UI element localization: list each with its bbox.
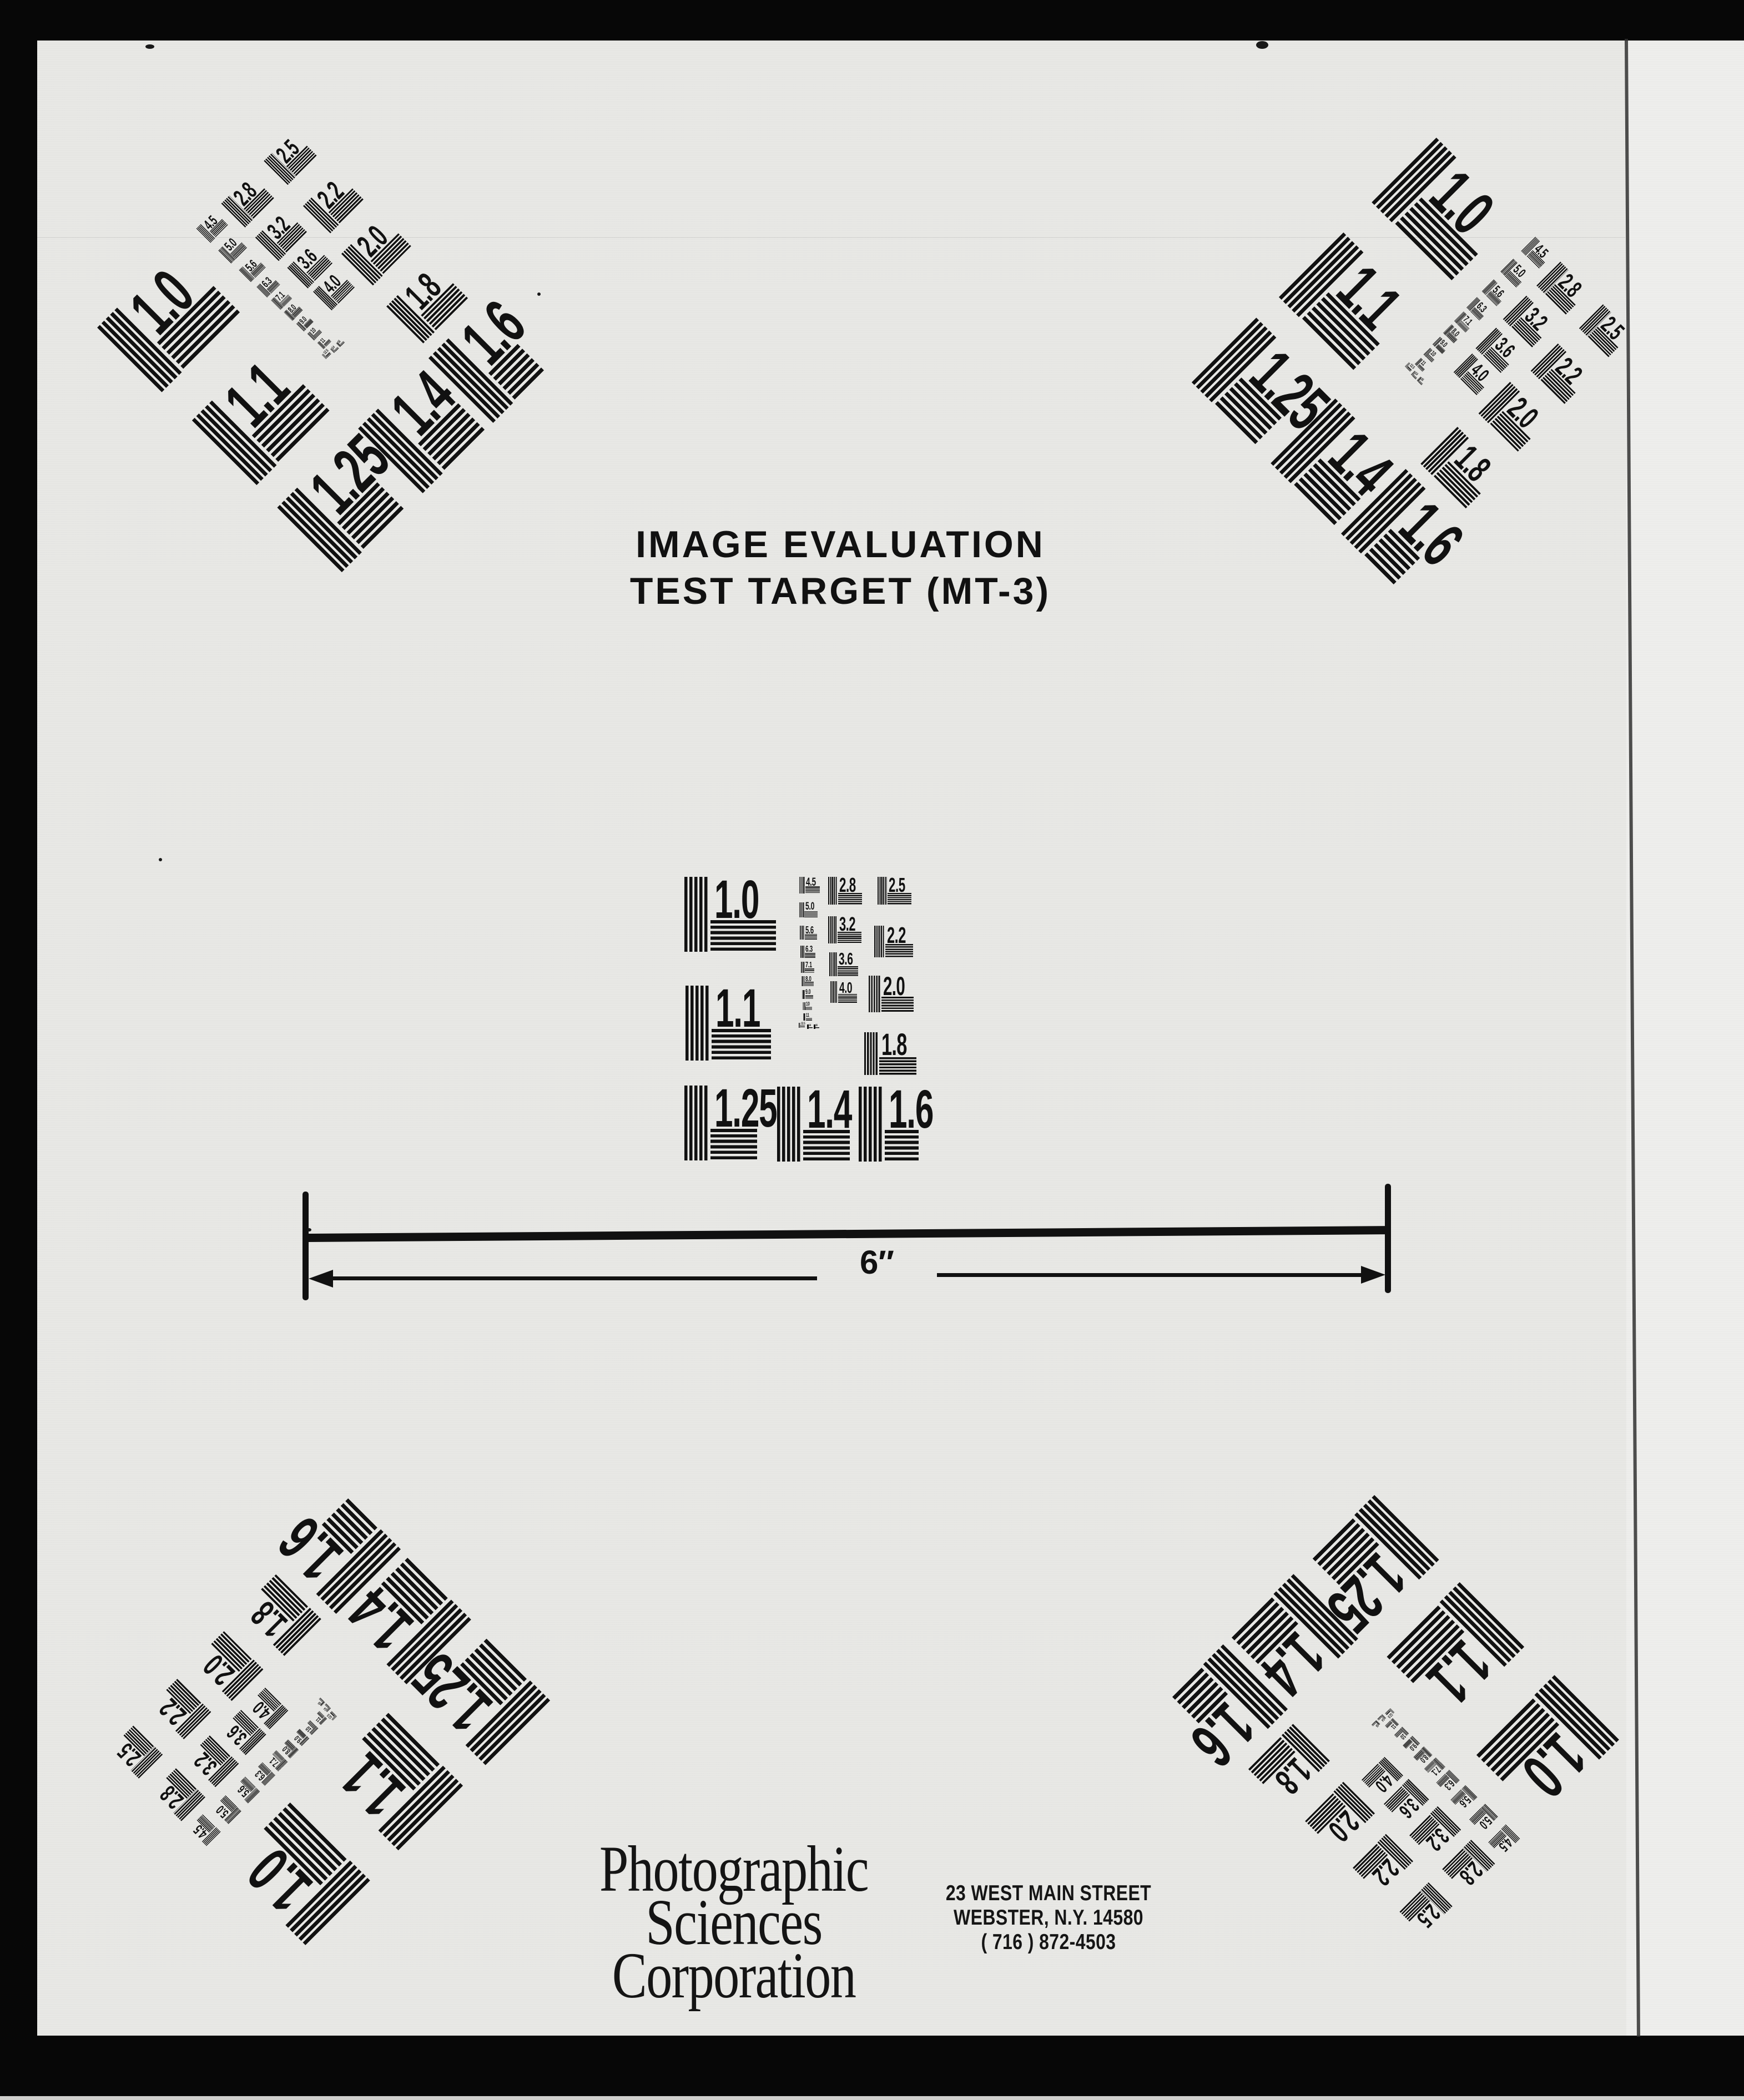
- resolution-bars-horizontal: [710, 1129, 757, 1160]
- resolution-bars-vertical: [800, 946, 804, 958]
- resolution-bars-horizontal: [805, 982, 814, 986]
- scale-bar-arrow-line-left: [320, 1276, 817, 1280]
- resolution-value-label: 2.0: [883, 973, 905, 1000]
- resolution-value-label: 1.25: [714, 1081, 777, 1135]
- resolution-bars-horizontal: [710, 920, 775, 952]
- resolution-bars-vertical: [684, 1086, 709, 1160]
- resolution-bars-horizontal: [838, 932, 861, 943]
- resolution-bars-vertical: [777, 1087, 802, 1162]
- title-line-1: IMAGE EVALUATION: [591, 521, 1090, 568]
- resolution-bars-horizontal: [838, 994, 857, 1003]
- resolution-bars-vertical: [828, 877, 838, 905]
- resolution-bars-horizontal: [804, 911, 817, 917]
- address-line-3: ( 716 ) 872-4503: [912, 1930, 1185, 1955]
- scale-bar-left-tick: [303, 1192, 309, 1300]
- company-line-3: Corporation: [556, 1949, 911, 2002]
- company-name-block: Photographic Sciences Corporation: [556, 1842, 911, 2002]
- resolution-bars-horizontal: [805, 1007, 812, 1010]
- scale-bar-arrow-line-right: [937, 1273, 1369, 1277]
- dust-speck: [537, 292, 541, 296]
- resolution-bars-horizontal: [838, 893, 863, 905]
- resolution-bars-vertical: [799, 877, 805, 893]
- title-block: IMAGE EVALUATION TEST TARGET (MT-3): [591, 521, 1090, 614]
- resolution-bars-vertical: [878, 877, 887, 905]
- resolution-bars-horizontal: [881, 997, 913, 1012]
- resolution-value-label: 3.6: [839, 951, 853, 968]
- resolution-bars-horizontal: [815, 1027, 819, 1029]
- scale-bar-right-tick: [1385, 1184, 1391, 1293]
- resolution-bars-horizontal: [885, 1130, 919, 1162]
- resolution-bars-horizontal: [885, 944, 913, 957]
- resolution-bars-vertical: [685, 986, 710, 1061]
- resolution-bars-vertical: [802, 990, 805, 999]
- resolution-bars-horizontal: [805, 934, 817, 940]
- address-line-1: 23 WEST MAIN STREET: [912, 1881, 1185, 1906]
- resolution-bars-vertical: [859, 1087, 884, 1162]
- scanned-test-target-page: IMAGE EVALUATION TEST TARGET (MT-3) 6″ P…: [0, 0, 1744, 2100]
- scale-bar-arrow-left-head: [309, 1270, 333, 1288]
- resolution-bars-horizontal: [805, 995, 813, 999]
- resolution-value-label: 4.0: [839, 980, 852, 996]
- resolution-value-label: 1.1: [715, 981, 760, 1035]
- resolution-value-label: 3.2: [839, 915, 855, 934]
- resolution-bars-vertical: [684, 877, 709, 952]
- resolution-bars-horizontal: [712, 1029, 771, 1061]
- resolution-value-label: 2.8: [839, 875, 856, 895]
- resolution-value-label: 1.0: [714, 872, 759, 926]
- resolution-value-label: 1.8: [881, 1029, 907, 1060]
- title-line-2: TEST TARGET (MT-3): [591, 568, 1090, 614]
- resolution-bars-vertical: [869, 976, 881, 1012]
- resolution-bars-horizontal: [805, 968, 814, 973]
- resolution-bars-horizontal: [879, 1057, 916, 1075]
- resolution-bars-horizontal: [806, 1018, 812, 1021]
- resolution-bars-horizontal: [803, 1130, 850, 1162]
- resolution-bars-vertical: [799, 902, 804, 917]
- resolution-bars-horizontal: [805, 953, 815, 958]
- resolution-bars-horizontal: [805, 886, 820, 893]
- resolution-bars-vertical: [830, 981, 838, 1003]
- company-address-block: 23 WEST MAIN STREET WEBSTER, N.Y. 14580 …: [912, 1881, 1185, 1955]
- resolution-value-label: 2.2: [887, 924, 906, 947]
- resolution-value-label: 1.6: [889, 1082, 933, 1136]
- adjacent-page-strip: [1626, 41, 1744, 2036]
- resolution-bars-vertical: [828, 916, 837, 943]
- resolution-bars-vertical: [802, 976, 805, 986]
- resolution-bars-horizontal: [838, 966, 858, 976]
- test-pattern-center: 1.01.11.251.41.64.55.05.66.37.18.09.0101…: [684, 877, 918, 1161]
- address-line-2: WEBSTER, N.Y. 14580: [912, 1906, 1185, 1930]
- resolution-bars-horizontal: [888, 893, 912, 905]
- resolution-bars-vertical: [801, 962, 805, 973]
- resolution-value-label: 2.5: [889, 875, 905, 895]
- resolution-bars-vertical: [864, 1032, 878, 1075]
- resolution-bars-vertical: [829, 952, 837, 976]
- resolution-bars-horizontal: [800, 1026, 805, 1028]
- scale-bar-label: 6″: [833, 1243, 921, 1281]
- resolution-value-label: 1.4: [807, 1082, 851, 1136]
- dust-speck: [307, 1228, 311, 1231]
- dust-speck: [145, 44, 154, 49]
- resolution-bars-vertical: [800, 926, 804, 940]
- scale-bar-arrow-right-head: [1361, 1266, 1385, 1284]
- resolution-bars-horizontal: [809, 1027, 813, 1029]
- film-bottom-strip: [0, 2096, 1744, 2100]
- dust-speck: [1256, 41, 1268, 49]
- resolution-bars-vertical: [874, 926, 885, 957]
- dust-speck: [159, 858, 162, 861]
